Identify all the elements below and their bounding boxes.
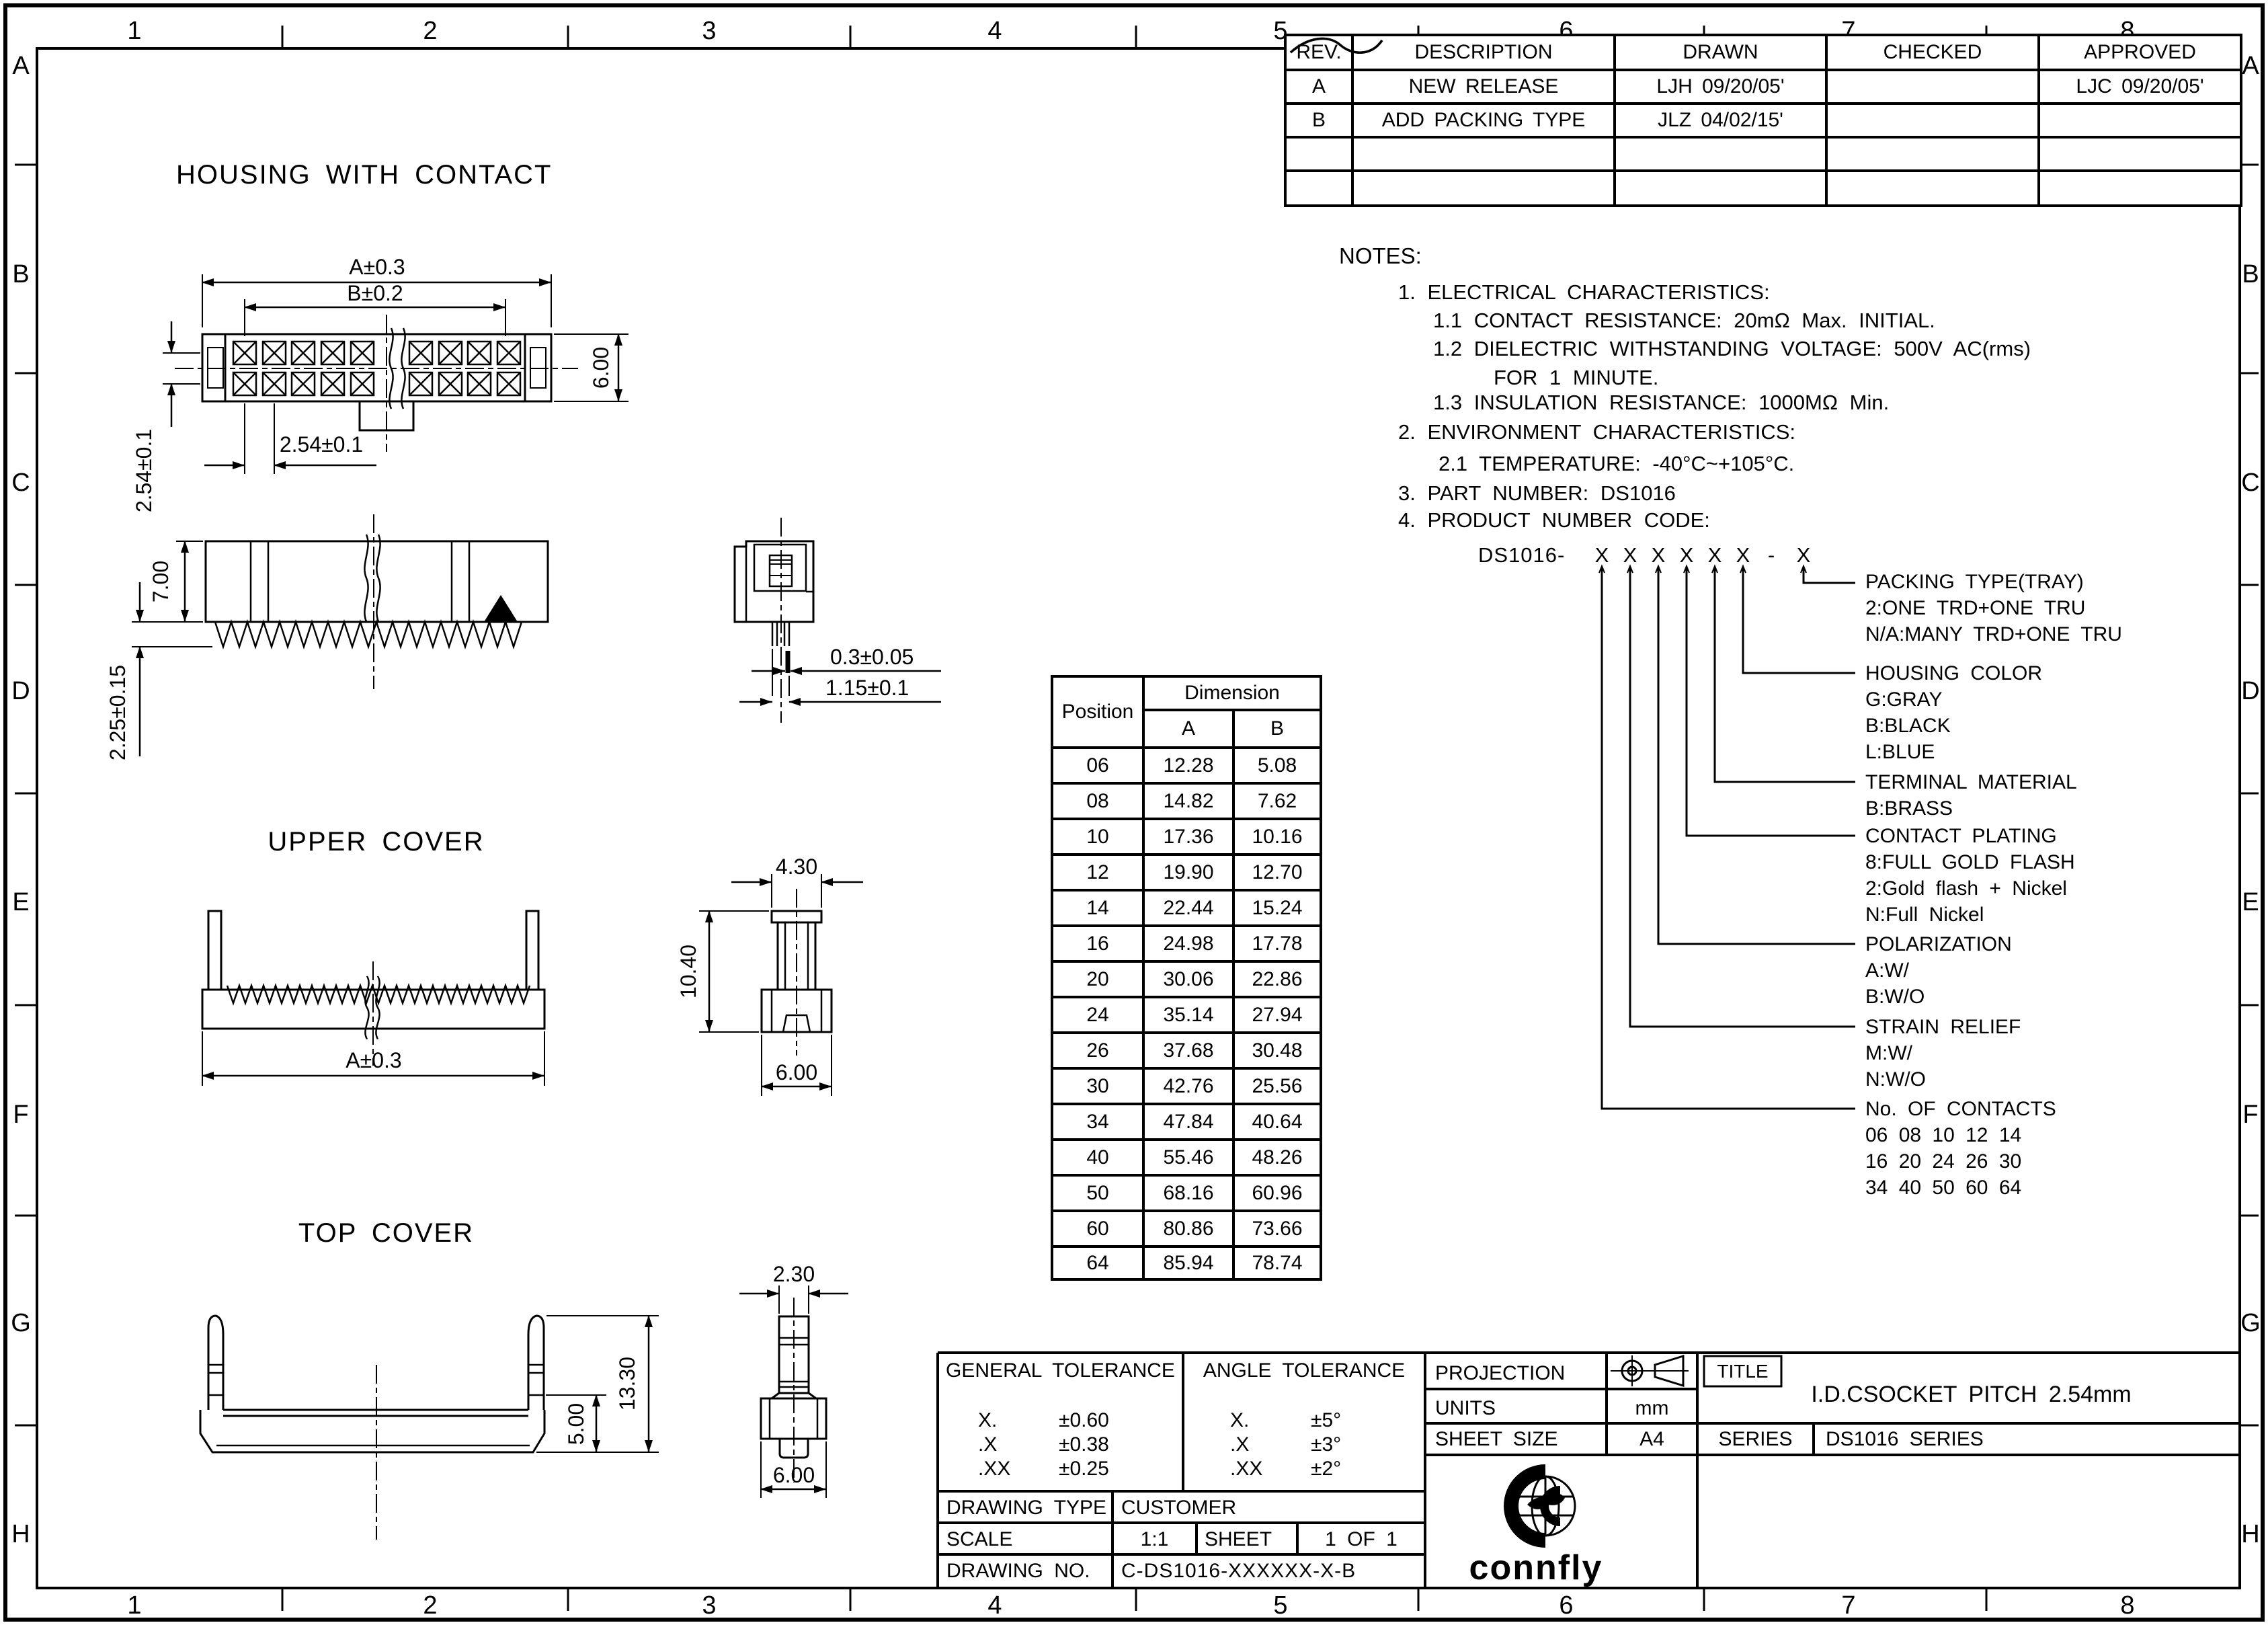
grid-row-label: C	[2241, 469, 2259, 497]
dim-b-cell: 22.86	[1233, 961, 1321, 997]
dimension-table: Position Dimension A B 0612.285.08 0814.…	[1051, 675, 1322, 1281]
grid-col-label: 2	[423, 17, 437, 45]
tolerance-key: X.	[1230, 1409, 1249, 1432]
dim-b-cell: 78.74	[1233, 1246, 1321, 1279]
legend-option: 34 40 50 60 64	[1865, 1175, 2056, 1201]
tolerance-value: ±0.38	[1059, 1433, 1109, 1456]
dim-tc-base-height: 5.00	[564, 1403, 588, 1445]
tolerance-value: ±0.60	[1059, 1409, 1109, 1432]
legend-title: HOUSING COLOR	[1865, 660, 2042, 686]
grid-row-label: F	[2242, 1101, 2258, 1129]
grid-col-label: 6	[1559, 1591, 1573, 1620]
dim-a-cell: 47.84	[1143, 1104, 1233, 1140]
grid-col-label: 7	[1841, 1591, 1855, 1620]
legend-option: B:W/O	[1865, 984, 2012, 1010]
series-label: SERIES	[1697, 1428, 1814, 1451]
grid-row-label: E	[2242, 888, 2259, 916]
grid-row-label: A	[2242, 52, 2259, 80]
note-line: FOR 1 MINUTE.	[1494, 366, 1658, 390]
pos-cell: 40	[1052, 1140, 1143, 1175]
legend-option: N/A:MANY TRD+ONE TRU	[1865, 621, 2122, 647]
drawn-header: DRAWN	[1615, 35, 1826, 70]
dim-a-cell: 19.90	[1143, 855, 1233, 890]
dim-a-cell: 17.36	[1143, 819, 1233, 855]
housing-front-view: 7.00 2.25±0.15	[106, 514, 548, 760]
drawing-no-value: C-DS1016-XXXXXX-X-B	[1121, 1560, 1356, 1583]
scale-value: 1:1	[1112, 1528, 1197, 1551]
note-line: 3. PART NUMBER: DS1016	[1398, 481, 1676, 506]
table-row: 6080.8673.66	[1052, 1211, 1321, 1246]
note-line: 2.1 TEMPERATURE: -40°C~+105°C.	[1439, 452, 1794, 476]
tolerance-value: ±3°	[1311, 1433, 1341, 1456]
legend-title: TERMINAL MATERIAL	[1865, 769, 2077, 795]
legend-title: STRAIN RELIEF	[1865, 1014, 2021, 1040]
pos-cell: 30	[1052, 1068, 1143, 1104]
dim-pin-thickness: 0.3±0.05	[830, 645, 914, 669]
revision-header-row: REV. DESCRIPTION DRAWN CHECKED APPROVED	[1285, 35, 2241, 70]
drawing-type-label: DRAWING TYPE	[946, 1497, 1106, 1519]
product-code-mark: X	[1707, 543, 1723, 567]
note-line: 4. PRODUCT NUMBER CODE:	[1398, 508, 1710, 532]
grid-col-label: 1	[127, 1591, 141, 1620]
grid-col-label: 5	[1273, 1591, 1287, 1620]
grid-col-label: 4	[987, 17, 1002, 45]
dim-uc-height: 10.40	[676, 945, 700, 998]
top-cover-side-view: 2.30 6.00	[739, 1262, 848, 1498]
connfly-logo-icon	[1504, 1464, 1575, 1548]
sheet-label: SHEET	[1205, 1528, 1272, 1551]
drawing-sheet: 1 2 3 4 5 6 7 8 1 2 3 4 5 6 7 8 A B C D …	[0, 0, 2268, 1625]
top-cover-front-view: 5.00 13.30	[200, 1316, 659, 1540]
dim-col-pitch: 2.54±0.1	[280, 432, 363, 457]
product-code-mark: X	[1678, 543, 1695, 567]
dim-housing-b: B±0.2	[347, 281, 403, 305]
legend-strain-relief: STRAIN RELIEF M:W/ N:W/O	[1865, 1014, 2021, 1093]
dim-a-cell: 14.82	[1143, 783, 1233, 819]
legend-option: G:GRAY	[1865, 686, 2042, 713]
legend-option: A:W/	[1865, 957, 2012, 984]
dimension-header: Dimension	[1143, 676, 1321, 710]
grid-col-label: 8	[2120, 1591, 2134, 1620]
legend-option: B:BRASS	[1865, 795, 2077, 822]
grid-col-label: 2	[423, 1591, 437, 1620]
pos-cell: 26	[1052, 1033, 1143, 1068]
grid-row-label: G	[11, 1309, 31, 1337]
table-row: 2030.0622.86	[1052, 961, 1321, 997]
grid-col-label: 3	[702, 1591, 716, 1620]
note-line: 2. ENVIRONMENT CHARACTERISTICS:	[1398, 420, 1795, 444]
table-row: 1422.4415.24	[1052, 890, 1321, 926]
dim-uc-bottom-width: 6.00	[776, 1060, 817, 1084]
note-line: 1.1 CONTACT RESISTANCE: 20mΩ Max. INITIA…	[1433, 309, 1935, 333]
grid-row-label: H	[2241, 1520, 2259, 1548]
product-code-mark: X	[1650, 543, 1666, 567]
dim-a-cell: 30.06	[1143, 961, 1233, 997]
drawing-no-label: DRAWING NO.	[946, 1560, 1090, 1583]
pos-cell: 34	[1052, 1104, 1143, 1140]
table-row: 2637.6830.48	[1052, 1033, 1321, 1068]
upper-cover-side-view: 4.30 10.40 6.00	[676, 855, 863, 1096]
grid-row-label: D	[2241, 677, 2259, 705]
product-code-prefix: DS1016-	[1478, 543, 1565, 567]
grid-row-label: B	[2242, 260, 2259, 288]
dim-b-cell: 48.26	[1233, 1140, 1321, 1175]
legend-option: 8:FULL GOLD FLASH	[1865, 849, 2075, 875]
product-code-mark: X	[1795, 543, 1812, 567]
title-value: I.D.CSOCKET PITCH 2.54mm	[1781, 1382, 2161, 1408]
table-row: 4055.4648.26	[1052, 1140, 1321, 1175]
tolerance-key: .XX	[978, 1458, 1010, 1480]
approved-cell: LJC 09/20/05'	[2039, 70, 2241, 104]
pos-cell: 50	[1052, 1175, 1143, 1211]
legend-title: CONTACT PLATING	[1865, 823, 2075, 849]
legend-contact-plating: CONTACT PLATING 8:FULL GOLD FLASH 2:Gold…	[1865, 823, 2075, 928]
description-cell: NEW RELEASE	[1352, 70, 1615, 104]
dim-a-cell: 22.44	[1143, 890, 1233, 926]
upper-cover-front-view: A±0.3	[202, 911, 544, 1086]
legend-option: 16 20 24 26 30	[1865, 1148, 2056, 1175]
dim-b-cell: 30.48	[1233, 1033, 1321, 1068]
dim-uc-top-width: 4.30	[776, 855, 817, 879]
dim-pin-length: 2.25±0.15	[106, 665, 130, 760]
table-row: 3447.8440.64	[1052, 1104, 1321, 1140]
top-cover-view-title: TOP COVER	[290, 1218, 482, 1249]
section-arrow	[484, 595, 518, 622]
dim-tc-total-height: 13.30	[615, 1357, 639, 1411]
product-code-mark: X	[1594, 543, 1610, 567]
dim-b-cell: 10.16	[1233, 819, 1321, 855]
revision-table: REV. DESCRIPTION DRAWN CHECKED APPROVED …	[1284, 34, 2242, 207]
table-row: Position Dimension	[1052, 676, 1321, 710]
grid-row-label: E	[12, 888, 29, 916]
checked-signature-cell	[1826, 104, 2039, 137]
rev-cell: B	[1285, 104, 1352, 137]
table-row	[1285, 171, 2241, 206]
dim-upper-cover-a: A±0.3	[346, 1048, 401, 1072]
pos-cell: 60	[1052, 1211, 1143, 1246]
grid-col-label: 4	[987, 1591, 1002, 1620]
tolerance-key: .X	[978, 1433, 997, 1456]
projection-label: PROJECTION	[1435, 1362, 1565, 1385]
tolerance-value: ±0.25	[1059, 1458, 1109, 1480]
dim-a-cell: 42.76	[1143, 1068, 1233, 1104]
series-value: DS1016 SERIES	[1826, 1428, 1984, 1451]
connfly-wordmark: connfly	[1428, 1548, 1644, 1588]
units-label: UNITS	[1435, 1397, 1496, 1420]
legend-housing-color: HOUSING COLOR G:GRAY B:BLACK L:BLUE	[1865, 660, 2042, 765]
dim-b-cell: 12.70	[1233, 855, 1321, 890]
approved-cell	[2039, 104, 2241, 137]
dim-b-cell: 40.64	[1233, 1104, 1321, 1140]
position-header: Position	[1052, 676, 1143, 748]
grid-row-label: H	[11, 1520, 30, 1548]
pos-cell: 06	[1052, 748, 1143, 783]
upper-cover-view-title: UPPER COVER	[264, 827, 489, 857]
dim-b-cell: 25.56	[1233, 1068, 1321, 1104]
product-code-mark: X	[1735, 543, 1751, 567]
legend-packing-type: PACKING TYPE(TRAY) 2:ONE TRD+ONE TRU N/A…	[1865, 569, 2122, 647]
tolerance-key: .X	[1230, 1433, 1249, 1456]
housing-top-view: A±0.3 B±0.2 6.00 2.54±0.1 2.54±0.1	[132, 255, 629, 512]
housing-side-view: 0.3±0.05 1.15±0.1	[735, 518, 941, 723]
tolerance-key: .XX	[1230, 1458, 1262, 1480]
pos-cell: 08	[1052, 783, 1143, 819]
table-row: 1017.3610.16	[1052, 819, 1321, 855]
legend-option: N:Full Nickel	[1865, 902, 2075, 928]
dim-front-height: 7.00	[149, 561, 173, 602]
dim-pin-width: 1.15±0.1	[825, 676, 909, 700]
table-row: 0612.285.08	[1052, 748, 1321, 783]
dim-tc-top-width: 2.30	[773, 1262, 815, 1286]
note-line: 1.3 INSULATION RESISTANCE: 1000MΩ Min.	[1433, 391, 1889, 415]
note-line: 1.2 DIELECTRIC WITHSTANDING VOLTAGE: 500…	[1433, 337, 2031, 361]
units-value: mm	[1607, 1397, 1697, 1420]
legend-title: POLARIZATION	[1865, 931, 2012, 957]
dim-housing-height: 6.00	[589, 347, 613, 389]
grid-row-label: A	[12, 52, 30, 80]
sheet-value: 1 OF 1	[1297, 1528, 1425, 1551]
dim-a-cell: 55.46	[1143, 1140, 1233, 1175]
table-row: 2435.1427.94	[1052, 997, 1321, 1033]
table-row: 3042.7625.56	[1052, 1068, 1321, 1104]
grid-col-label: 3	[702, 17, 716, 45]
legend-terminal-material: TERMINAL MATERIAL B:BRASS	[1865, 769, 2077, 822]
dim-b-cell: 27.94	[1233, 997, 1321, 1033]
legend-option: B:BLACK	[1865, 713, 2042, 739]
legend-option: 06 08 10 12 14	[1865, 1122, 2056, 1148]
sheet-size-value: A4	[1607, 1428, 1697, 1451]
grid-row-label: B	[12, 260, 29, 288]
description-cell: ADD PACKING TYPE	[1352, 104, 1615, 137]
checked-header: CHECKED	[1826, 35, 2039, 70]
legend-option: 2:ONE TRD+ONE TRU	[1865, 595, 2122, 621]
table-row: 1219.9012.70	[1052, 855, 1321, 890]
dim-b-cell: 5.08	[1233, 748, 1321, 783]
checked-signature-cell	[1826, 70, 2039, 104]
table-row: B ADD PACKING TYPE JLZ 04/02/15'	[1285, 104, 2241, 137]
dim-row-pitch: 2.54±0.1	[132, 429, 156, 512]
pos-cell: 12	[1052, 855, 1143, 890]
dim-a-cell: 85.94	[1143, 1246, 1233, 1279]
dim-b-cell: 7.62	[1233, 783, 1321, 819]
grid-col-label: 1	[127, 17, 141, 45]
dim-a-cell: 24.98	[1143, 926, 1233, 961]
legend-option: L:BLUE	[1865, 739, 2042, 765]
rev-cell: A	[1285, 70, 1352, 104]
dim-a-cell: 80.86	[1143, 1211, 1233, 1246]
legend-polarization: POLARIZATION A:W/ B:W/O	[1865, 931, 2012, 1010]
dim-housing-a: A±0.3	[349, 255, 405, 279]
product-code-leaders	[1599, 566, 1855, 1109]
legend-option: 2:Gold flash + Nickel	[1865, 875, 2075, 902]
dim-a-cell: 35.14	[1143, 997, 1233, 1033]
tolerance-value: ±5°	[1311, 1409, 1341, 1432]
product-code-mark: X	[1622, 543, 1638, 567]
table-row: 6485.9478.74	[1052, 1246, 1321, 1279]
col-b-header: B	[1233, 710, 1321, 748]
dim-b-cell: 15.24	[1233, 890, 1321, 926]
grid-row-label: F	[13, 1101, 28, 1129]
title-label: TITLE	[1704, 1361, 1781, 1382]
tolerance-value: ±2°	[1311, 1458, 1341, 1480]
dim-tc-bottom-width: 6.00	[773, 1463, 815, 1487]
dim-a-cell: 12.28	[1143, 748, 1233, 783]
legend-title: No. OF CONTACTS	[1865, 1096, 2056, 1122]
dim-b-cell: 60.96	[1233, 1175, 1321, 1211]
col-a-header: A	[1143, 710, 1233, 748]
legend-contacts-count: No. OF CONTACTS 06 08 10 12 14 16 20 24 …	[1865, 1096, 2056, 1201]
description-header: DESCRIPTION	[1352, 35, 1615, 70]
table-row: 0814.827.62	[1052, 783, 1321, 819]
drawing-type-value: CUSTOMER	[1121, 1497, 1236, 1519]
note-line: 1. ELECTRICAL CHARACTERISTICS:	[1398, 280, 1770, 305]
pos-cell: 64	[1052, 1246, 1143, 1279]
legend-option: N:W/O	[1865, 1066, 2021, 1093]
notes-heading: NOTES:	[1339, 243, 1422, 269]
table-row: 1624.9817.78	[1052, 926, 1321, 961]
product-code-mark: -	[1763, 543, 1779, 567]
pos-cell: 16	[1052, 926, 1143, 961]
angle-tolerance-title: ANGLE TOLERANCE	[1186, 1359, 1422, 1382]
general-tolerance-title: GENERAL TOLERANCE	[941, 1359, 1180, 1382]
scale-label: SCALE	[946, 1528, 1012, 1551]
housing-view-title: HOUSING WITH CONTACT	[176, 160, 542, 190]
dim-a-cell: 68.16	[1143, 1175, 1233, 1211]
grid-row-label: D	[11, 677, 30, 705]
pos-cell: 10	[1052, 819, 1143, 855]
table-row	[1285, 137, 2241, 171]
legend-title: PACKING TYPE(TRAY)	[1865, 569, 2122, 595]
drawn-cell: LJH 09/20/05'	[1615, 70, 1826, 104]
tolerance-key: X.	[978, 1409, 997, 1432]
grid-row-label: G	[2240, 1309, 2261, 1337]
table-row: A NEW RELEASE LJH 09/20/05' LJC 09/20/05…	[1285, 70, 2241, 104]
approved-header: APPROVED	[2039, 35, 2241, 70]
sheet-size-label: SHEET SIZE	[1435, 1428, 1558, 1451]
table-row: 5068.1660.96	[1052, 1175, 1321, 1211]
legend-option: M:W/	[1865, 1040, 2021, 1066]
projection-symbol-icon	[1611, 1355, 1689, 1386]
dim-b-cell: 73.66	[1233, 1211, 1321, 1246]
pos-cell: 20	[1052, 961, 1143, 997]
drawn-cell: JLZ 04/02/15'	[1615, 104, 1826, 137]
dim-b-cell: 17.78	[1233, 926, 1321, 961]
pos-cell: 14	[1052, 890, 1143, 926]
pos-cell: 24	[1052, 997, 1143, 1033]
grid-row-label: C	[11, 469, 30, 497]
dim-a-cell: 37.68	[1143, 1033, 1233, 1068]
